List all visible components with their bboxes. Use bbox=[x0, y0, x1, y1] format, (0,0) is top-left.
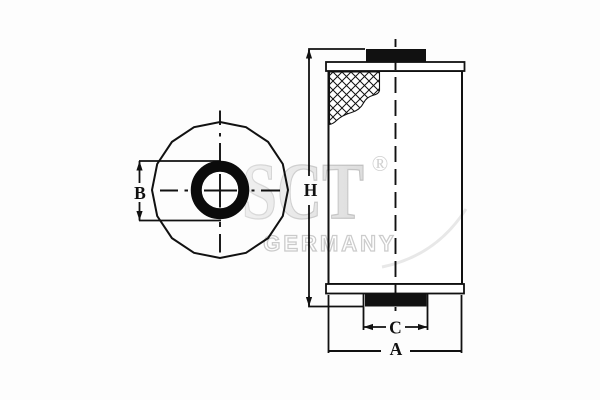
svg-text:A: A bbox=[390, 339, 403, 359]
svg-text:B: B bbox=[134, 183, 146, 203]
svg-text:SCT: SCT bbox=[242, 148, 364, 236]
svg-text:C: C bbox=[389, 318, 402, 338]
svg-text:®: ® bbox=[372, 151, 389, 176]
svg-text:GERMANY: GERMANY bbox=[263, 231, 396, 256]
